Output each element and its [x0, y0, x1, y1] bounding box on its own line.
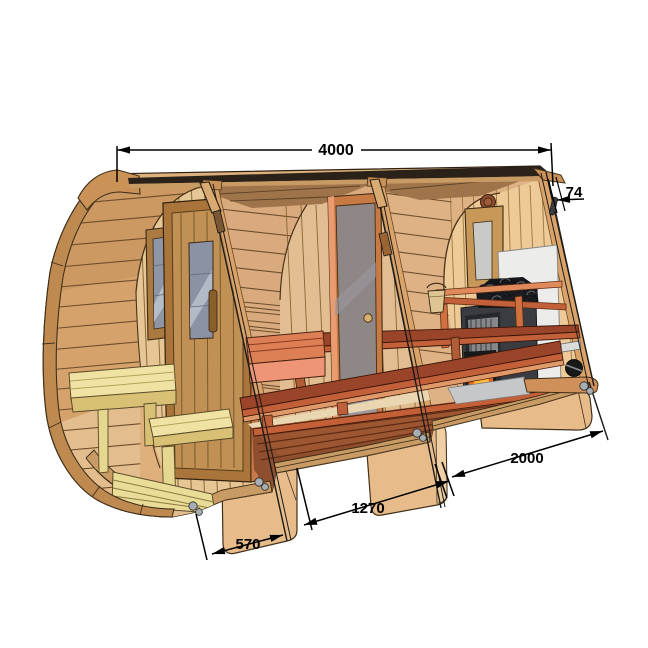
svg-text:2000: 2000 [510, 450, 543, 467]
svg-text:570: 570 [235, 536, 260, 553]
svg-text:74: 74 [566, 184, 583, 201]
svg-text:1270: 1270 [351, 500, 384, 517]
svg-text:4000: 4000 [318, 142, 354, 159]
